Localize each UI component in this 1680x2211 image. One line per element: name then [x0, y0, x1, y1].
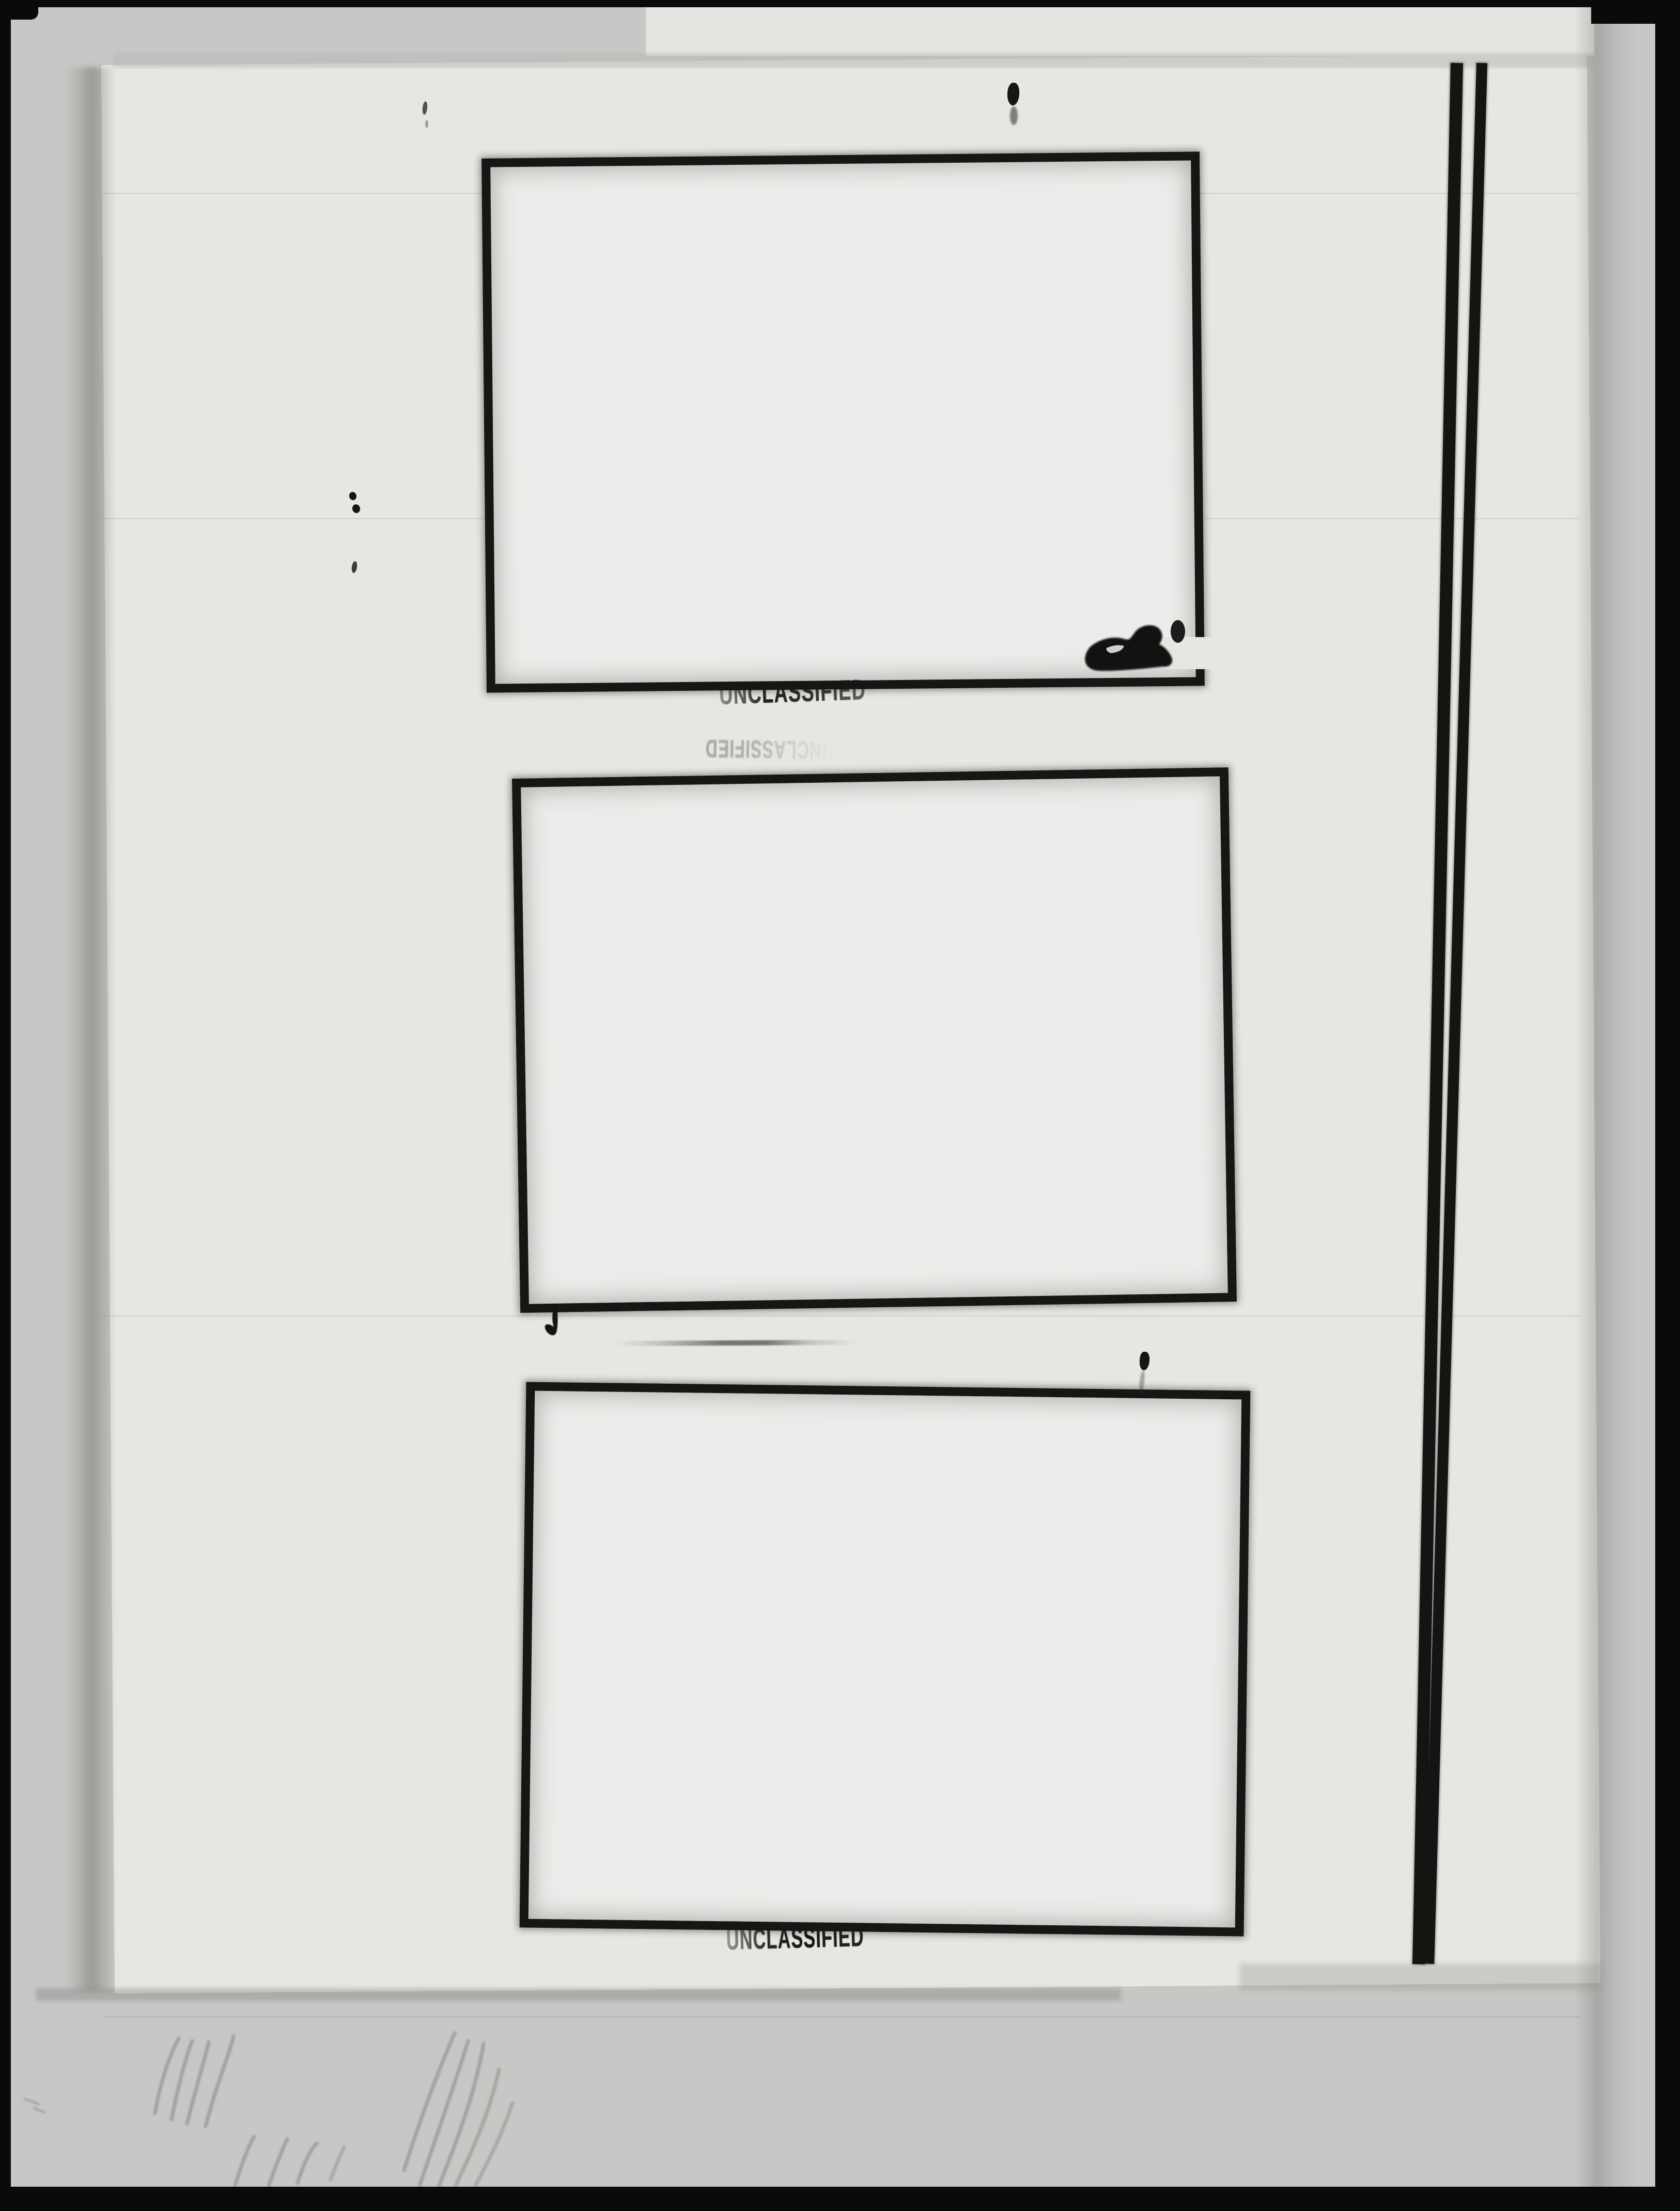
- scan-artifact-line: [103, 1315, 1581, 1317]
- photo-frame-2: [512, 767, 1237, 1313]
- unclassified-stamp-ghost-offset-print: UNCLASSIFIED: [705, 734, 834, 764]
- unclassified-stamp-bottom: UNCLASSIFIED: [726, 1920, 864, 1956]
- page-left-fold-shadow: [66, 67, 114, 1991]
- film-edge-top: [0, 0, 1680, 7]
- film-edge-right: [1655, 0, 1680, 2211]
- film-edge-bottom: [0, 2187, 1680, 2211]
- ink-mark-upper-left-dot: [425, 120, 428, 128]
- ink-mark-top-tail: [1010, 106, 1018, 125]
- photo-frame-3: [520, 1382, 1251, 1936]
- page-bottom-edge-shadow: [36, 1988, 1121, 2001]
- photo-frame-1: [481, 151, 1205, 692]
- page-top-bright-area: [646, 6, 1594, 56]
- unclassified-stamp-top: UNCLASSIFIED: [719, 673, 866, 711]
- page-right-edge-shadow: [1575, 4, 1639, 2190]
- film-edge-left: [0, 0, 11, 2196]
- scan-artifact-line: [103, 2016, 1581, 2018]
- scanned-document-page: UNCLASSIFIED UNCLASSIFIED UNCLASSIFIED: [0, 0, 1680, 2211]
- page-top-edge-shadow: [114, 53, 1594, 68]
- page-bottom-edge-shadow-right: [1240, 1963, 1601, 1990]
